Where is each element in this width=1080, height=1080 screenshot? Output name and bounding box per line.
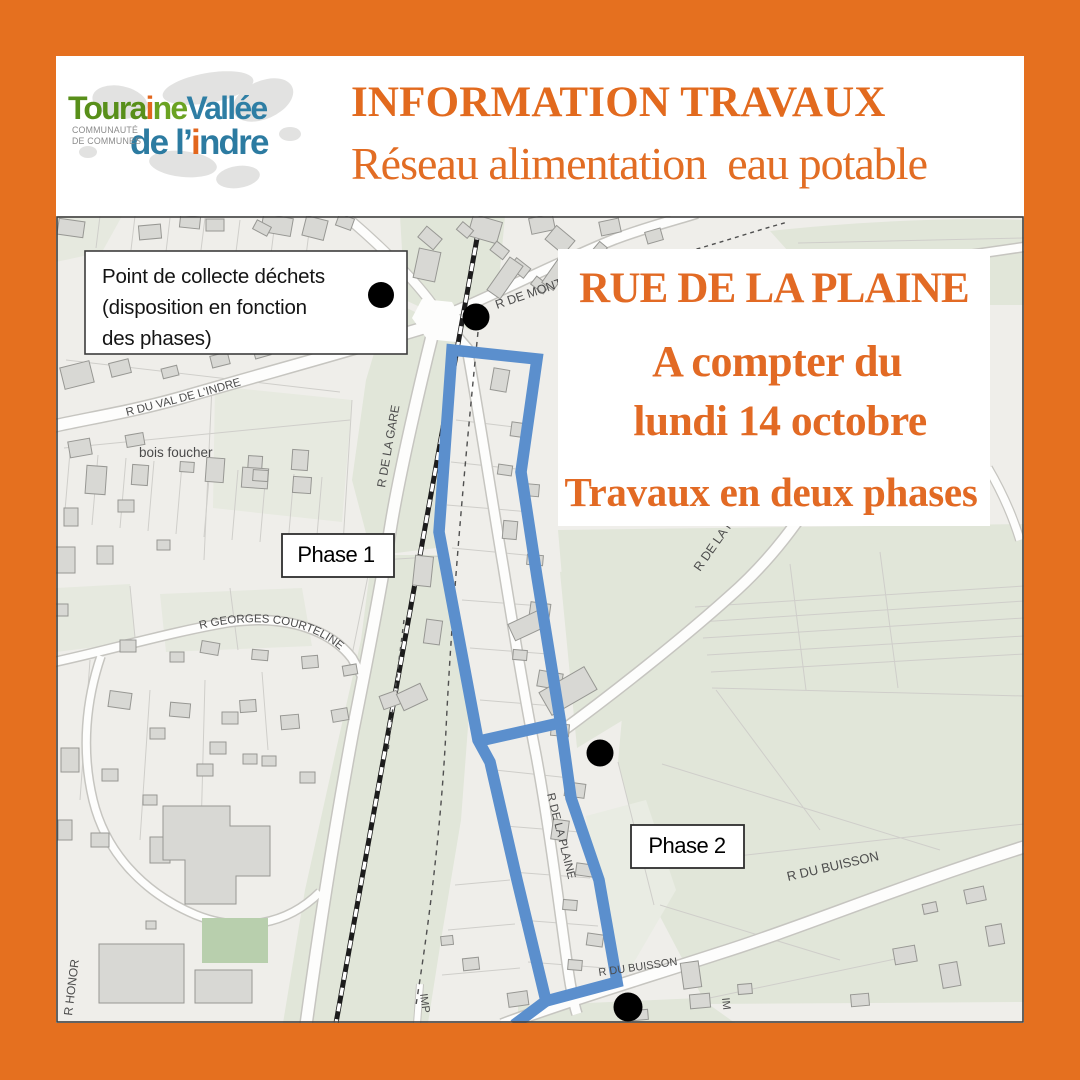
svg-text:A compter du: A compter du (652, 337, 902, 386)
svg-text:Phase 1: Phase 1 (297, 542, 374, 567)
svg-text:COMMUNAUTÉ: COMMUNAUTÉ (72, 125, 138, 135)
svg-text:des phases): des phases) (102, 327, 211, 350)
svg-text:Point de collecte déchets: Point de collecte déchets (102, 265, 325, 288)
svg-text:lundi 14 octobre: lundi 14 octobre (633, 397, 927, 445)
svg-text:Travaux en deux phases: Travaux en deux phases (565, 469, 978, 515)
svg-text:(disposition en fonction: (disposition en fonction (102, 296, 307, 319)
svg-text:DE COMMUNES: DE COMMUNES (72, 136, 141, 146)
svg-text:TouraineVallée: TouraineVallée (68, 90, 267, 126)
svg-text:bois foucher: bois foucher (139, 445, 213, 460)
svg-text:IM: IM (719, 997, 732, 1010)
svg-text:RUE DE LA PLAINE: RUE DE LA PLAINE (579, 265, 969, 312)
svg-text:Phase 2: Phase 2 (648, 833, 725, 858)
svg-text:de l’indre: de l’indre (130, 123, 269, 162)
